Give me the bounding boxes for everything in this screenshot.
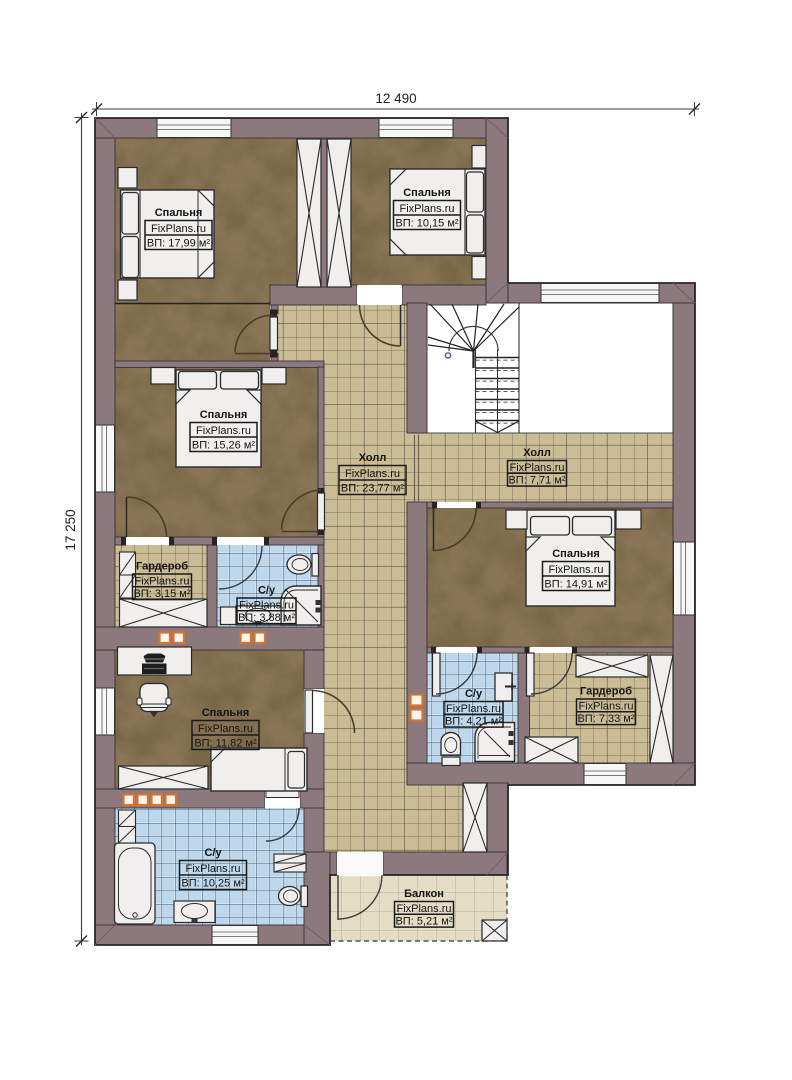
svg-text:FixPlans.ru: FixPlans.ru [185,863,240,875]
svg-text:ВП: 7,71 м²: ВП: 7,71 м² [508,475,565,487]
svg-text:FixPlans.ru: FixPlans.ru [578,700,633,712]
svg-text:С/у: С/у [204,847,222,859]
svg-text:FixPlans.ru: FixPlans.ru [151,223,206,235]
svg-text:Спальня: Спальня [202,707,250,719]
svg-text:С/у: С/у [258,585,276,597]
svg-text:ВП: 15,26 м²: ВП: 15,26 м² [192,439,256,451]
svg-text:Спальня: Спальня [552,548,600,560]
svg-text:FixPlans.ru: FixPlans.ru [198,723,253,735]
svg-text:FixPlans.ru: FixPlans.ru [446,703,501,715]
svg-text:ВП: 14,91 м²: ВП: 14,91 м² [544,578,608,590]
svg-text:Гардероб: Гардероб [580,686,632,698]
svg-text:ВП: 4,21 м²: ВП: 4,21 м² [445,716,502,728]
svg-text:С/у: С/у [465,688,483,700]
svg-text:Холл: Холл [523,447,551,459]
svg-text:17 250: 17 250 [63,509,78,550]
svg-text:ВП: 10,25 м²: ВП: 10,25 м² [181,877,245,889]
svg-text:Балкон: Балкон [404,888,444,900]
svg-text:FixPlans.ru: FixPlans.ru [239,599,294,611]
svg-text:Спальня: Спальня [403,187,451,199]
svg-text:ВП: 7,33 м²: ВП: 7,33 м² [577,713,634,725]
svg-text:ВП: 23,77 м²: ВП: 23,77 м² [341,482,405,494]
svg-text:ВП: 11,82 м²: ВП: 11,82 м² [194,737,257,749]
svg-text:FixPlans.ru: FixPlans.ru [548,564,603,576]
svg-text:FixPlans.ru: FixPlans.ru [396,903,451,915]
svg-text:ВП: 5,21 м²: ВП: 5,21 м² [395,916,452,928]
svg-text:FixPlans.ru: FixPlans.ru [345,468,400,480]
svg-text:12 490: 12 490 [375,91,416,106]
svg-text:ВП: 17,99 м²: ВП: 17,99 м² [147,237,211,249]
svg-text:Спальня: Спальня [155,207,203,219]
svg-text:Спальня: Спальня [200,409,248,421]
svg-text:FixPlans.ru: FixPlans.ru [196,425,251,437]
svg-text:ВП: 3,88 м²: ВП: 3,88 м² [238,612,295,624]
svg-text:FixPlans.ru: FixPlans.ru [399,203,454,215]
svg-text:ВП: 3,15 м²: ВП: 3,15 м² [133,588,190,600]
svg-text:FixPlans.ru: FixPlans.ru [509,462,564,474]
svg-text:Холл: Холл [359,452,387,464]
svg-text:ВП: 10,15 м²: ВП: 10,15 м² [395,217,459,229]
svg-text:FixPlans.ru: FixPlans.ru [134,575,189,587]
svg-text:Гардероб: Гардероб [136,561,188,573]
